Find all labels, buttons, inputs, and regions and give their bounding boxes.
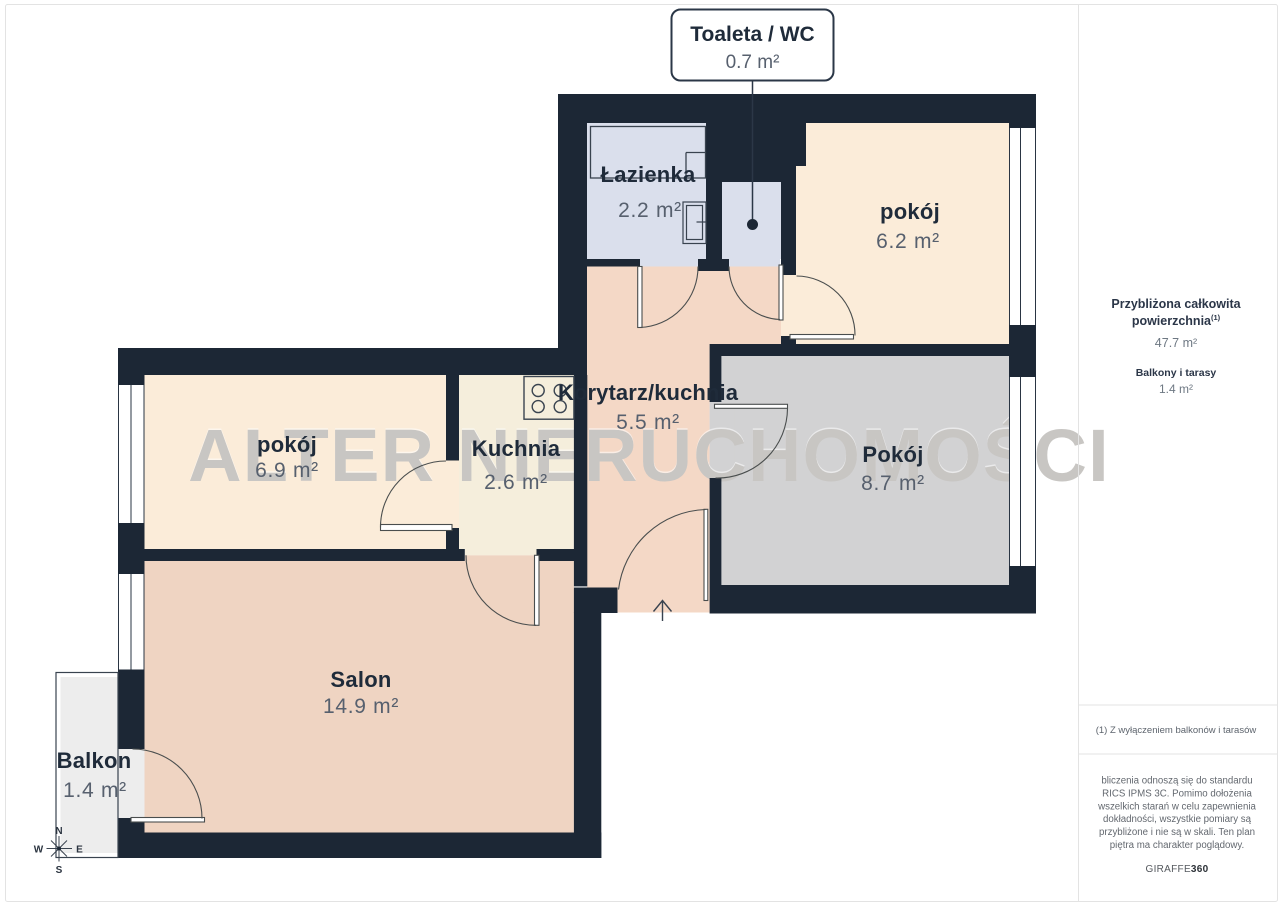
svg-text:powierzchnia(1): powierzchnia(1) [1132,313,1221,328]
svg-text:N: N [55,826,62,837]
svg-text:Korytarz/kuchnia: Korytarz/kuchnia [558,380,739,405]
svg-text:Toaleta / WC: Toaleta / WC [690,23,814,46]
svg-text:47.7 m²: 47.7 m² [1155,336,1197,350]
svg-text:2.2 m²: 2.2 m² [618,199,682,222]
svg-text:Balkon: Balkon [57,748,132,773]
svg-text:RICS IPMS 3C. Pomimo dołożenia: RICS IPMS 3C. Pomimo dołożenia [1102,788,1252,799]
svg-text:wszelkich starań w celu zapewn: wszelkich starań w celu zapewnienia [1097,801,1256,812]
svg-text:W: W [34,845,44,856]
svg-text:6.9 m²: 6.9 m² [255,459,319,482]
svg-text:Balkony i tarasy: Balkony i tarasy [1136,367,1217,379]
svg-text:(1) Z wyłączeniem balkonów i t: (1) Z wyłączeniem balkonów i tarasów [1096,725,1257,736]
svg-text:Salon: Salon [330,667,391,692]
svg-text:1.4 m²: 1.4 m² [1159,382,1193,396]
svg-text:14.9 m²: 14.9 m² [323,695,399,718]
svg-text:pokój: pokój [880,199,940,224]
svg-text:5.5 m²: 5.5 m² [616,411,680,434]
svg-text:8.7 m²: 8.7 m² [861,472,925,495]
svg-text:0.7 m²: 0.7 m² [726,52,780,73]
svg-text:GIRAFFE360: GIRAFFE360 [1145,864,1208,875]
svg-text:1.4 m²: 1.4 m² [63,779,127,802]
svg-text:piętra ma charakter poglądowy.: piętra ma charakter poglądowy. [1110,840,1244,851]
svg-text:6.2 m²: 6.2 m² [876,230,940,253]
svg-text:dokładności, wszystkie pomiary: dokładności, wszystkie pomiary są [1103,814,1252,825]
svg-text:Pokój: Pokój [862,442,923,467]
svg-text:Łazienka: Łazienka [601,162,696,187]
svg-text:E: E [76,845,83,856]
svg-text:Kuchnia: Kuchnia [472,436,561,461]
svg-text:Przybliżona całkowita: Przybliżona całkowita [1111,297,1241,311]
svg-text:przybliżone i nie są w skali.: przybliżone i nie są w skali. Ten plan [1099,827,1255,838]
svg-text:bliczenia odnoszą się do stand: bliczenia odnoszą się do standardu [1101,776,1252,787]
svg-text:pokój: pokój [257,432,317,457]
svg-text:S: S [56,865,63,876]
svg-text:2.6 m²: 2.6 m² [484,471,548,494]
